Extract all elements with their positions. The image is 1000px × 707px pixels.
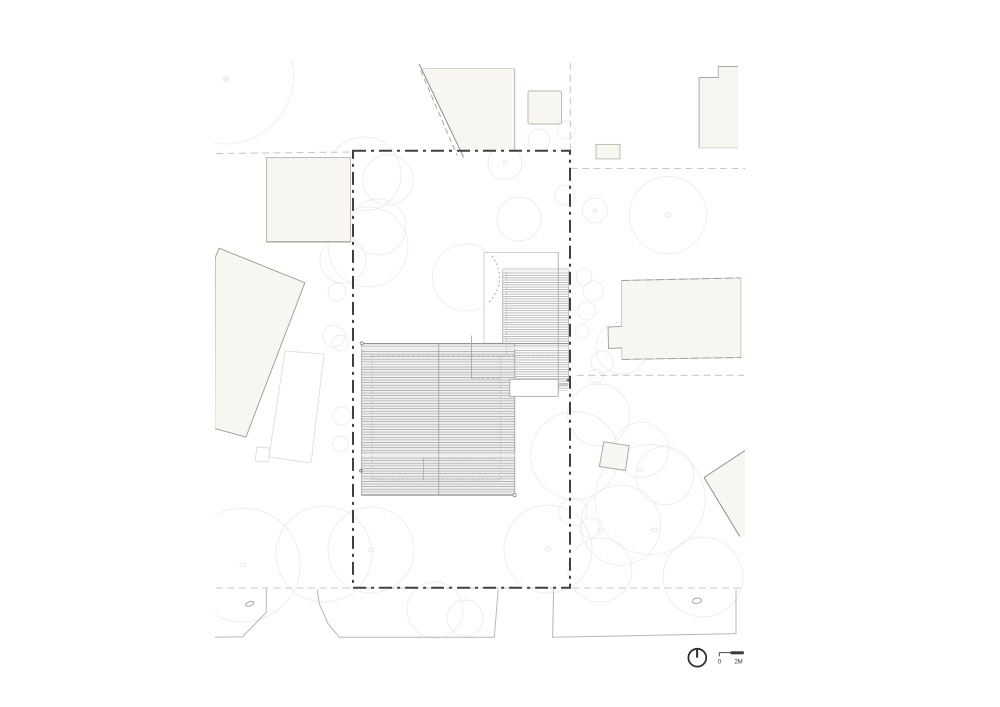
svg-text:0: 0	[718, 660, 722, 666]
svg-text:2M: 2M	[734, 660, 742, 666]
